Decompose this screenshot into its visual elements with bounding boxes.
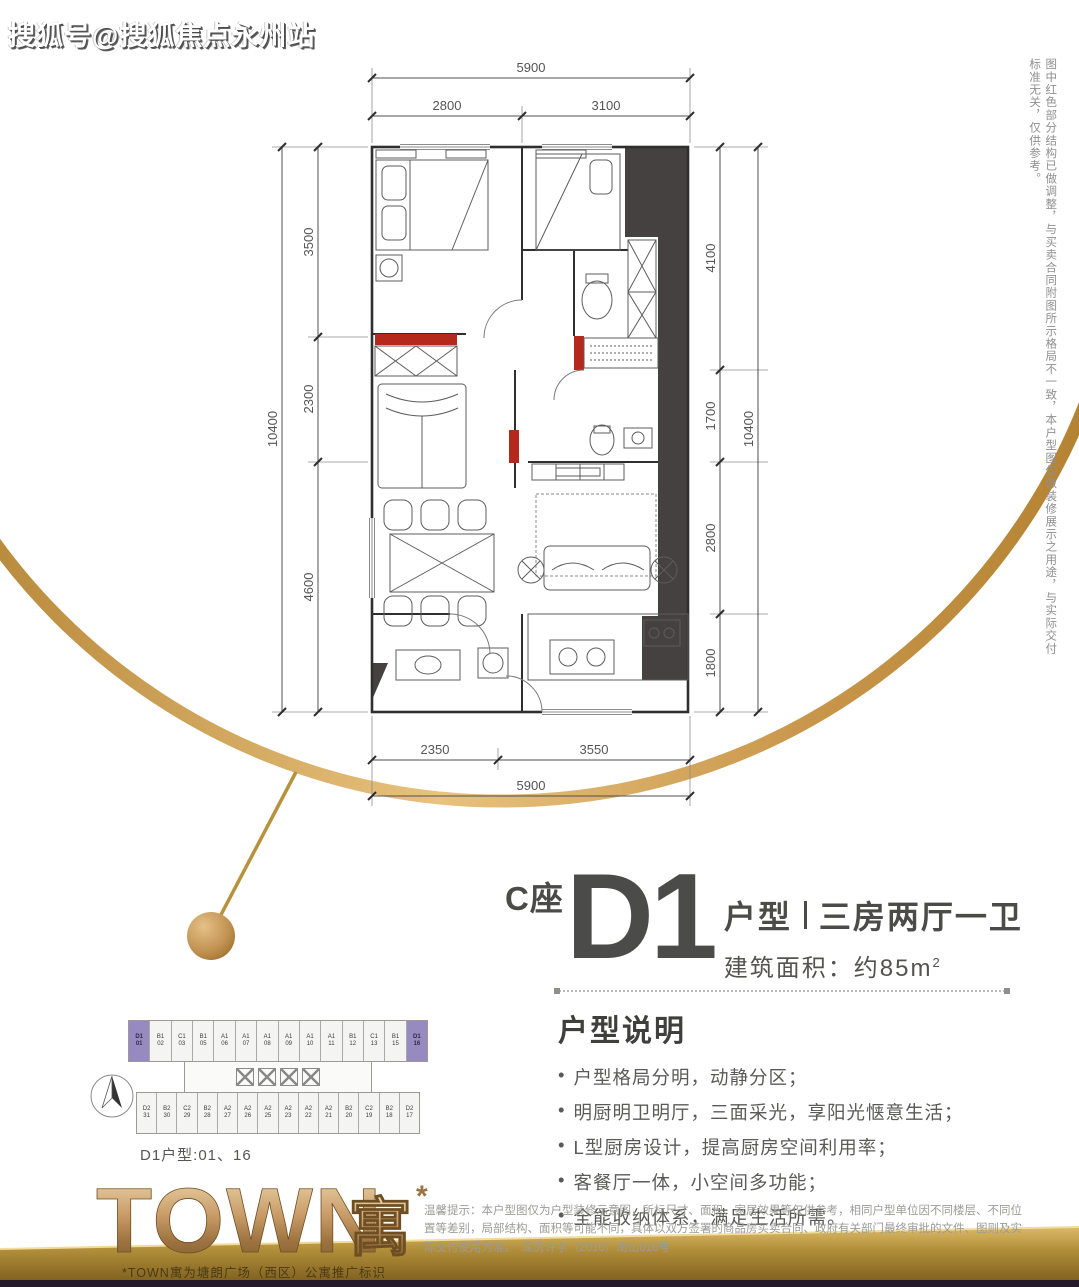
- disclaimer: 温馨提示：本户型图仅为户型装修示意图，所标尺寸、面积、家居效果等仅供参考，相同户…: [424, 1202, 1030, 1257]
- logo-text: TOWN: [96, 1170, 383, 1272]
- logo-suffix: 寓: [348, 1192, 412, 1264]
- page: 搜狐号@搜狐焦点永州站 图中红色部分结构已做调整，与买卖合同附图所示格局不一致，…: [0, 0, 1079, 1287]
- bottom-band: [0, 0, 1079, 1287]
- watermark: 搜狐号@搜狐焦点永州站: [8, 14, 315, 53]
- logo-caption: *TOWN寓为塘朗广场（西区）公寓推广标识: [122, 1262, 386, 1281]
